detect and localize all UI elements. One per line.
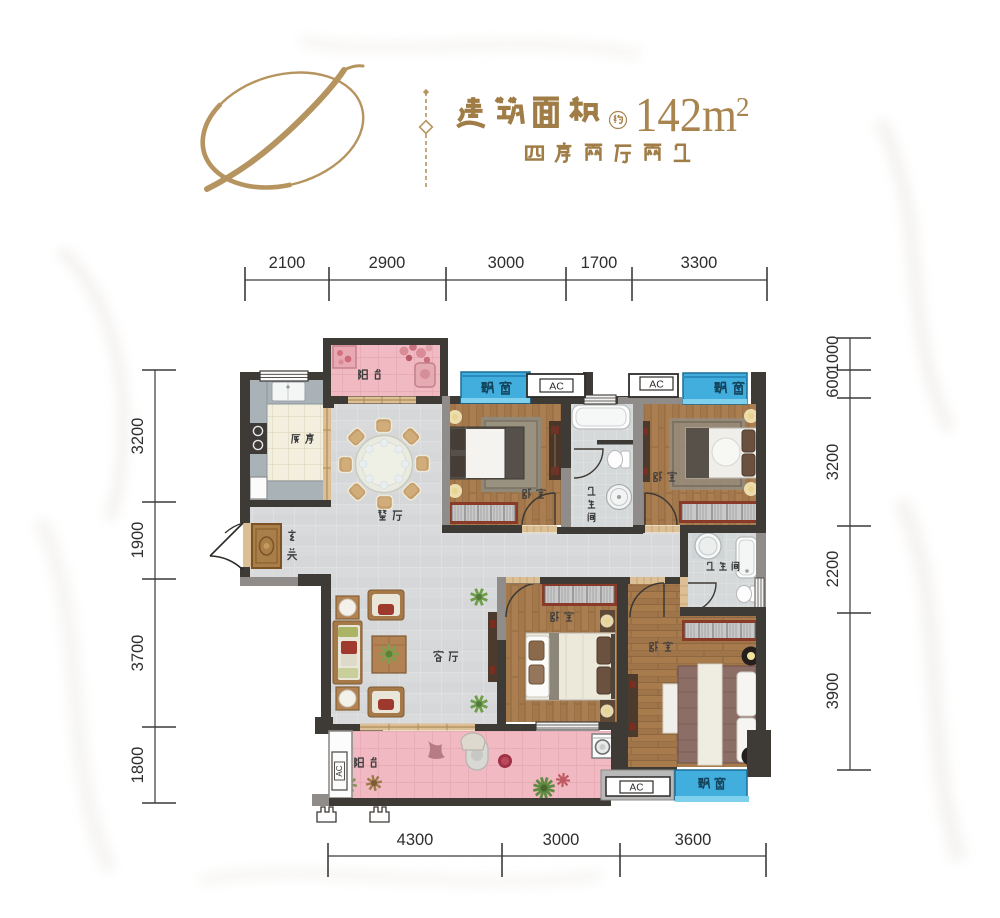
svg-text:3600: 3600 <box>675 831 712 849</box>
svg-text:3200: 3200 <box>824 444 842 481</box>
svg-text:AC: AC <box>549 381 564 393</box>
svg-text:1900: 1900 <box>129 522 147 559</box>
svg-text:1000: 1000 <box>824 336 842 373</box>
svg-text:142m: 142m <box>635 87 737 142</box>
svg-text:2100: 2100 <box>269 254 306 272</box>
svg-text:2: 2 <box>736 92 750 122</box>
svg-text:3200: 3200 <box>129 418 147 455</box>
svg-text:2200: 2200 <box>824 551 842 588</box>
svg-text:600: 600 <box>824 370 842 398</box>
svg-text:AC: AC <box>630 783 644 794</box>
svg-text:3000: 3000 <box>543 831 580 849</box>
svg-text:AC: AC <box>335 765 344 776</box>
svg-text:1700: 1700 <box>581 254 618 272</box>
svg-text:3300: 3300 <box>681 254 718 272</box>
svg-text:3900: 3900 <box>824 673 842 710</box>
svg-text:4300: 4300 <box>397 831 434 849</box>
svg-text:3000: 3000 <box>488 254 525 272</box>
svg-text:1800: 1800 <box>129 747 147 784</box>
svg-text:AC: AC <box>649 379 664 391</box>
svg-text:3700: 3700 <box>129 635 147 672</box>
svg-text:2900: 2900 <box>369 254 406 272</box>
